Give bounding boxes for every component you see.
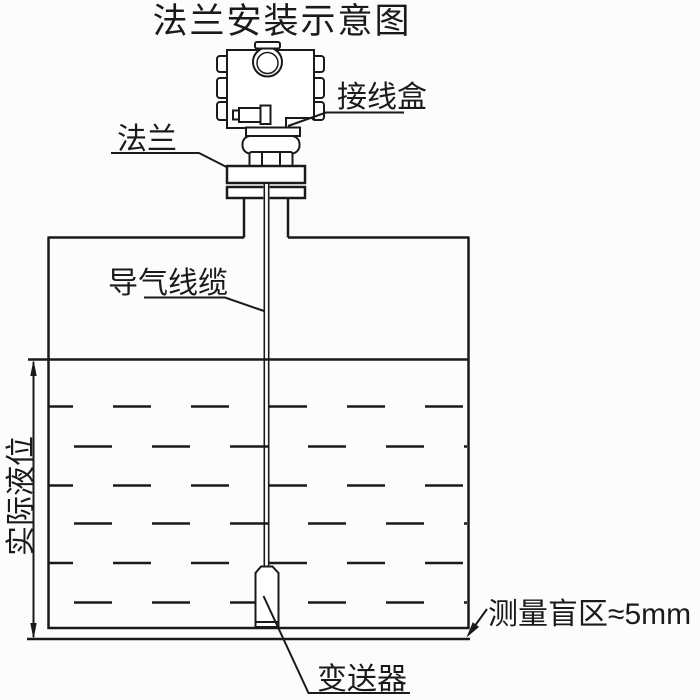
label-air-guide-cable: 导气线缆 bbox=[108, 267, 228, 300]
cable-drawing bbox=[263, 184, 269, 570]
head-dome-inner-icon bbox=[257, 53, 278, 74]
diagram-svg: 法兰安装示意图 bbox=[0, 0, 700, 700]
label-flange: 法兰 bbox=[117, 123, 177, 156]
label-junction-box: 接线盒 bbox=[337, 81, 427, 114]
liquid-hatch bbox=[35, 407, 467, 603]
dimension-arrow-down-icon bbox=[30, 623, 36, 640]
swivel-top-bar bbox=[246, 128, 300, 137]
probe-drawing bbox=[256, 567, 279, 628]
label-transmitter: 变送器 bbox=[317, 663, 407, 696]
label-measurement-blind-zone: 测量盲区≈5mm bbox=[488, 598, 691, 631]
diagram-title: 法兰安装示意图 bbox=[152, 2, 411, 41]
conduit-connector bbox=[261, 106, 271, 125]
leader-lines bbox=[111, 113, 487, 694]
transmitter-head-drawing bbox=[217, 42, 324, 169]
flange-installation-diagram: 法兰安装示意图 bbox=[0, 0, 700, 700]
flange-plate-upper bbox=[227, 166, 305, 183]
tank-outline bbox=[27, 238, 470, 640]
conduit-stub bbox=[233, 111, 239, 120]
swivel-joint bbox=[243, 136, 300, 154]
head-dome-cap bbox=[255, 42, 280, 49]
dimension-arrow-up-icon bbox=[30, 360, 36, 377]
label-actual-liquid-level: 实际液位 bbox=[5, 436, 38, 556]
